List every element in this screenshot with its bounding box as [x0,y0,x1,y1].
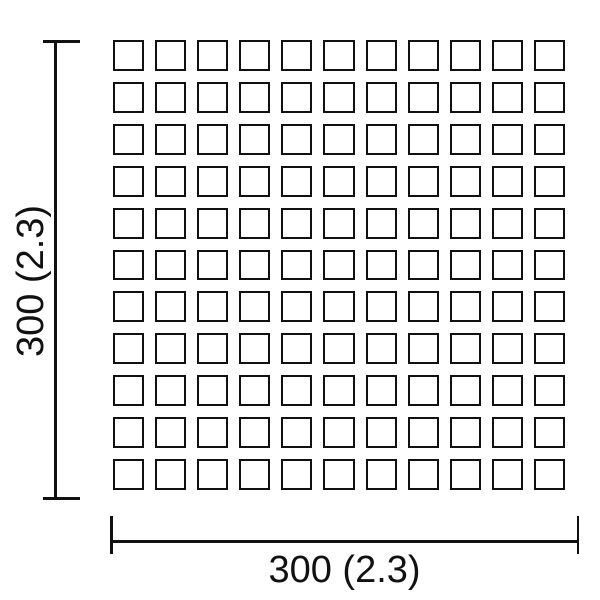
tile-square [113,291,144,322]
tile-square [281,166,312,197]
horizontal-dimension-label: 300 (2.3) [111,551,578,589]
tile-square [408,40,439,71]
tile-square [155,208,186,239]
tile-square [323,166,354,197]
tile-square [155,124,186,155]
tile-square [281,208,312,239]
tile-square [323,333,354,364]
tile-square [534,166,565,197]
tile-square [450,459,481,490]
tile-square [534,40,565,71]
tile-square [113,459,144,490]
tile-square [281,82,312,113]
tile-square [450,40,481,71]
tile-square [534,375,565,406]
tile-square [366,417,397,448]
tile-square [323,375,354,406]
tile-square [197,124,228,155]
tile-square [534,82,565,113]
tile-square [492,166,523,197]
tile-square [113,40,144,71]
tile-square [197,40,228,71]
horizontal-dimension-tick-right [577,516,580,554]
tile-square [239,40,270,71]
tile-square [197,208,228,239]
tile-square [239,250,270,281]
tile-square [366,459,397,490]
tile-square [113,208,144,239]
tile-square [155,166,186,197]
tile-square [155,82,186,113]
tile-square [450,250,481,281]
tile-square [408,82,439,113]
tile-square [408,417,439,448]
tile-square [492,291,523,322]
tile-square [155,333,186,364]
tile-square [239,208,270,239]
vertical-dimension-line [54,41,57,499]
tile-square [281,124,312,155]
tile-square [113,124,144,155]
tile-square [492,459,523,490]
tile-square [155,417,186,448]
tile-square [155,375,186,406]
horizontal-dimension-tick-left [110,516,113,554]
tile-square [492,40,523,71]
tile-square [450,82,481,113]
tile-square [408,208,439,239]
tile-square [239,417,270,448]
vertical-dimension-cap-bottom [43,497,80,500]
tile-square [197,459,228,490]
tile-square [323,40,354,71]
tile-square [534,250,565,281]
tile-square [281,291,312,322]
tile-square [281,40,312,71]
tile-square [408,250,439,281]
tile-square [239,459,270,490]
tile-square [366,333,397,364]
tile-square [366,250,397,281]
tile-square [281,459,312,490]
tile-square [366,82,397,113]
tile-square [492,333,523,364]
tile-square [197,291,228,322]
tile-square [534,417,565,448]
tile-square [239,291,270,322]
tile-square [113,375,144,406]
tile-square [408,333,439,364]
tile-square [197,375,228,406]
tile-square [492,417,523,448]
tile-square [450,333,481,364]
tile-square [197,417,228,448]
tile-square [408,375,439,406]
tile-square [408,291,439,322]
tile-square [408,459,439,490]
tile-square [366,291,397,322]
tile-square [450,208,481,239]
tile-grid [113,40,565,490]
tile-square [155,291,186,322]
vertical-dimension-label: 300 (2.3) [12,205,50,357]
tile-square [450,291,481,322]
tile-square [366,375,397,406]
tile-square [492,250,523,281]
tile-square [113,333,144,364]
drawing-canvas: 300 (2.3) 300 (2.3) [0,0,600,600]
tile-square [534,208,565,239]
tile-square [534,459,565,490]
tile-square [366,40,397,71]
tile-square [113,82,144,113]
tile-square [323,459,354,490]
tile-square [492,208,523,239]
tile-square [323,208,354,239]
tile-square [366,208,397,239]
tile-square [239,333,270,364]
tile-square [281,333,312,364]
tile-square [239,124,270,155]
tile-square [197,333,228,364]
tile-square [366,124,397,155]
tile-square [492,82,523,113]
tile-square [155,250,186,281]
tile-square [323,291,354,322]
tile-square [239,375,270,406]
tile-square [366,166,397,197]
tile-square [113,250,144,281]
tile-square [197,166,228,197]
tile-square [534,124,565,155]
tile-square [323,124,354,155]
tile-square [450,166,481,197]
tile-square [155,459,186,490]
tile-square [197,250,228,281]
tile-square [197,82,228,113]
tile-square [492,375,523,406]
tile-square [323,82,354,113]
tile-square [534,333,565,364]
tile-square [239,166,270,197]
tile-square [113,417,144,448]
tile-square [408,166,439,197]
vertical-dimension-cap-top [43,40,80,43]
tile-square [450,375,481,406]
tile-square [492,124,523,155]
tile-square [323,417,354,448]
tile-square [534,291,565,322]
tile-square [450,417,481,448]
horizontal-dimension-line [111,540,578,543]
tile-square [408,124,439,155]
tile-square [155,40,186,71]
tile-square [281,375,312,406]
tile-square [281,417,312,448]
tile-square [239,82,270,113]
tile-square [113,166,144,197]
tile-square [323,250,354,281]
tile-square [281,250,312,281]
tile-square [450,124,481,155]
